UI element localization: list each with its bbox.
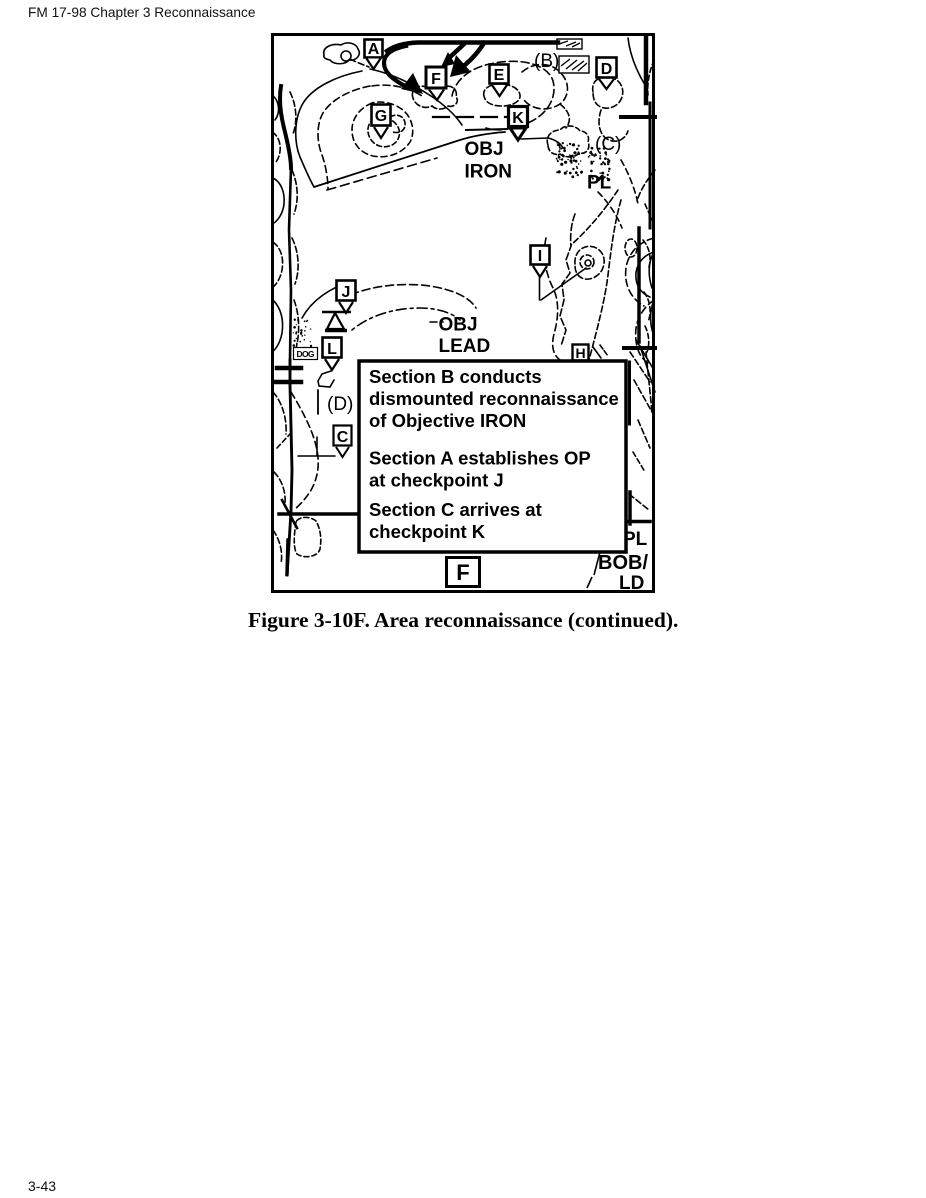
- svg-text:OBJ: OBJ: [465, 139, 504, 160]
- svg-text:Section C arrives at: Section C arrives at: [369, 499, 542, 520]
- svg-text:L: L: [327, 341, 337, 358]
- svg-text:(C): (C): [595, 134, 621, 155]
- svg-text:BOB/: BOB/: [598, 552, 648, 574]
- svg-text:K: K: [512, 110, 524, 127]
- svg-text:H: H: [575, 345, 585, 361]
- svg-text:DOG: DOG: [297, 349, 315, 359]
- svg-text:checkpoint K: checkpoint K: [369, 521, 486, 542]
- svg-text:C: C: [337, 429, 349, 446]
- svg-text:IRON: IRON: [465, 162, 513, 183]
- svg-text:I: I: [538, 248, 542, 265]
- svg-text:Section B conducts: Section B conducts: [369, 366, 542, 387]
- svg-text:E: E: [494, 67, 505, 84]
- svg-text:G: G: [375, 108, 387, 125]
- svg-text:(B): (B): [534, 51, 559, 72]
- svg-text:F: F: [456, 560, 469, 585]
- svg-text:of Objective IRON: of Objective IRON: [369, 410, 526, 431]
- svg-text:A: A: [368, 41, 380, 58]
- svg-text:Section A establishes OP: Section A establishes OP: [369, 448, 591, 469]
- svg-text:LEAD: LEAD: [439, 336, 491, 357]
- svg-text:D: D: [601, 61, 613, 78]
- svg-text:LD: LD: [619, 573, 644, 594]
- svg-text:(D): (D): [327, 394, 353, 415]
- svg-text:at checkpoint J: at checkpoint J: [369, 470, 504, 491]
- svg-text:F: F: [431, 71, 441, 88]
- svg-text:J: J: [342, 284, 351, 301]
- svg-text:dismounted reconnaissance: dismounted reconnaissance: [369, 388, 619, 409]
- svg-text:OBJ: OBJ: [439, 315, 478, 336]
